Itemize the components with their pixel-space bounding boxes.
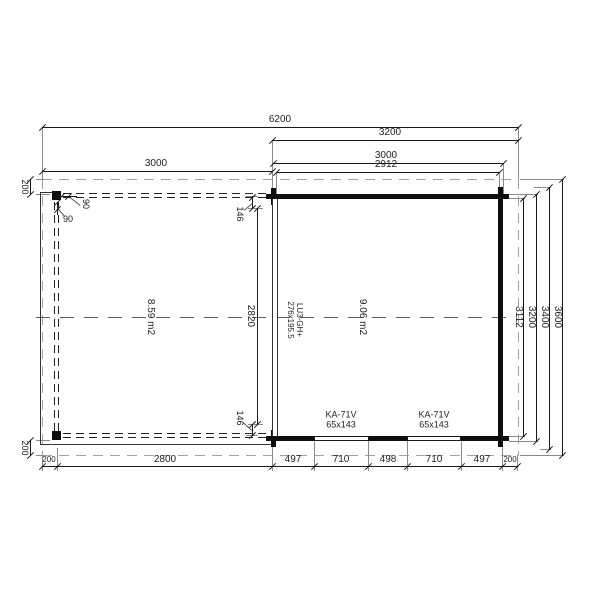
dim-line-bottom-chain: [42, 466, 518, 467]
window-size: 65x143: [418, 420, 449, 430]
dim-tick: [533, 438, 540, 445]
overhang-outline-top: [42, 179, 519, 180]
dim-tick: [546, 446, 553, 453]
beam-axis-bottom: [63, 437, 272, 438]
window-1-label: KA-71V 65x143: [325, 411, 356, 430]
dim-label-total-height: 3600: [552, 306, 562, 328]
dim-label-bottom: 710: [426, 455, 443, 465]
wall-right: [498, 187, 503, 447]
dim-label-right-interior: 2912: [375, 160, 397, 170]
extension-line: [518, 127, 519, 179]
dim-tick: [520, 433, 527, 440]
post-bottom-left: [52, 431, 61, 440]
dim-tick: [559, 452, 566, 459]
beam-axis-bottom: [63, 433, 272, 434]
dim-label-bottom: 710: [333, 455, 350, 465]
dim-label-overhang-top: 200: [20, 179, 30, 194]
wall-corner-stub-top-right: [503, 194, 509, 199]
glazed-door-code: LU3-GH+: [295, 301, 304, 338]
dim-label-post-depth: 90: [63, 214, 73, 224]
dim-label-offset-bottom: 146: [235, 410, 245, 425]
dim-label-bottom: 498: [380, 455, 397, 465]
dim-label-bottom: 200: [42, 455, 55, 465]
leader-line-post-width: [70, 197, 81, 206]
terrace-edge-left: [40, 192, 41, 444]
dim-line-left-section: [42, 171, 273, 172]
extension-line: [517, 455, 518, 471]
extension-line: [503, 163, 504, 194]
window-2: [407, 436, 461, 441]
dim-label-terrace-interior: 2820: [245, 305, 255, 327]
post-top-left: [52, 191, 61, 200]
glazed-door-wall: [272, 199, 278, 436]
dim-label-right-interior-height: 3112: [513, 306, 523, 328]
beam-axis-left: [54, 202, 55, 431]
beam-axis-top: [63, 197, 272, 198]
dim-label-overhang-bottom: 200: [20, 440, 30, 455]
dim-line-2820: [257, 208, 258, 425]
overhang-outline-bottom: [42, 455, 519, 456]
floor-plan: 6200 3200 3000 2912 3000 200 2800 497 71…: [0, 0, 600, 600]
glazed-door-size: 276x195.5: [286, 301, 295, 338]
dim-label-total-width: 6200: [269, 115, 291, 125]
dim-label-bottom: 497: [474, 455, 491, 465]
window-2-label: KA-71V 65x143: [418, 411, 449, 430]
dim-label-right-outer: 3200: [379, 128, 401, 138]
dim-line-total-width: [42, 127, 519, 128]
dim-line-right-interior: [276, 172, 500, 173]
wall-bottom-segment: [461, 436, 503, 441]
wall-bottom-segment: [368, 436, 407, 441]
extension-line: [272, 140, 273, 194]
wall-corner-stub-bottom-right: [503, 436, 509, 441]
window-size: 65x143: [325, 420, 356, 430]
beam-axis-left: [58, 202, 59, 431]
dim-label-post-width: 90: [81, 199, 91, 209]
dim-label-bottom: 2800: [154, 455, 176, 465]
extension-line: [520, 179, 564, 180]
extension-line: [36, 194, 50, 195]
dim-label-left-section: 3000: [145, 159, 167, 169]
room-area-right: 9.06 m2: [357, 299, 367, 335]
beam-axis-top: [63, 193, 272, 194]
extension-line: [36, 440, 50, 441]
dim-label-bottom: 200: [503, 455, 516, 465]
extension-line: [36, 179, 44, 180]
dim-label-offset-top: 146: [235, 206, 245, 221]
wall-top: [266, 194, 503, 199]
dim-label-right-overhang-height: 3400: [539, 306, 549, 328]
room-area-left: 8.59 m2: [145, 299, 155, 335]
extension-line: [520, 455, 564, 456]
terrace-edge-bottom: [40, 444, 273, 445]
glazed-door-label: LU3-GH+ 276x195.5: [286, 301, 304, 338]
dim-line-right-outer: [272, 140, 519, 141]
dim-label-bottom: 497: [285, 455, 302, 465]
dim-label-right-building-height: 3200: [526, 306, 536, 328]
window-1: [314, 436, 369, 441]
